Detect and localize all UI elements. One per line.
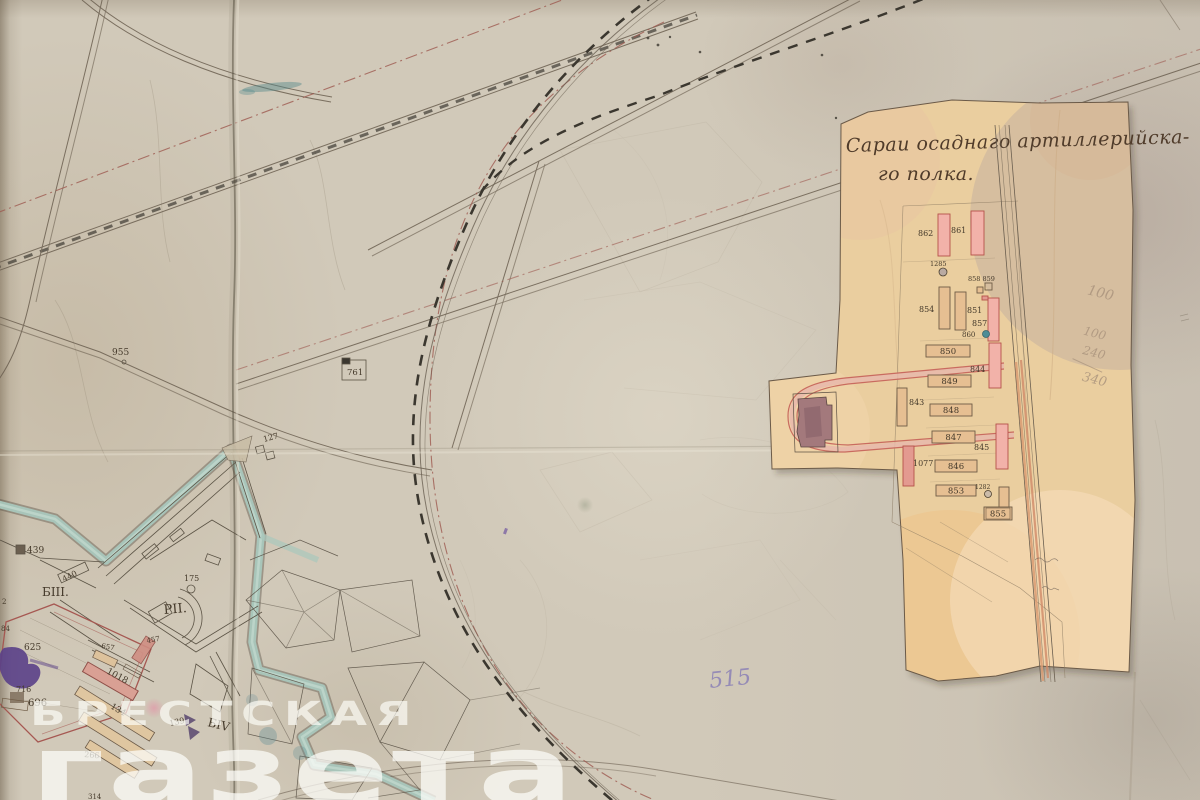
number-label: 846 xyxy=(948,462,964,472)
shed-building xyxy=(996,424,1008,469)
number-label: 440 xyxy=(61,569,79,584)
number-label: 848 xyxy=(943,406,959,416)
number-label: 845 xyxy=(974,443,989,452)
watermark: БРЕСТСКАЯ газета xyxy=(30,697,395,800)
number-label: РII. xyxy=(163,601,187,618)
shed-building xyxy=(982,296,988,300)
number-label: 457 xyxy=(146,635,161,645)
ink-blot xyxy=(0,647,40,689)
shed-building xyxy=(955,292,966,330)
number-label: 175 xyxy=(184,574,199,583)
number-label: 850 xyxy=(940,347,956,357)
number-label: 716 xyxy=(16,685,31,694)
number-label: 955 xyxy=(112,348,129,358)
map-marker xyxy=(939,268,947,276)
number-label: 854 xyxy=(919,305,934,314)
inset-title-line2: го полка. xyxy=(878,163,974,185)
purple-handwritten-number: 515 xyxy=(708,665,752,694)
red-survey-circle xyxy=(430,22,664,799)
number-label: 127 xyxy=(262,431,279,444)
railway-dashed-main xyxy=(413,0,656,800)
number-label: 625 xyxy=(24,643,41,653)
building-439-mark xyxy=(16,545,25,554)
scanned-map-page: 955761127439440БIII.175РII.6574576257166… xyxy=(0,0,1200,800)
number-label: 855 xyxy=(990,510,1006,520)
shed-building xyxy=(999,487,1009,509)
shed-building xyxy=(971,211,984,255)
number-label: 849 xyxy=(941,377,957,387)
number-label: 657 xyxy=(101,642,116,652)
road-steep-west xyxy=(0,0,109,386)
railway-track-line xyxy=(420,0,663,800)
number-label: 844 xyxy=(970,365,985,374)
number-label: 439 xyxy=(27,546,44,556)
number-label: 853 xyxy=(948,487,964,497)
number-label: 1077 xyxy=(913,459,933,468)
number-label: 857 xyxy=(972,319,987,328)
number-label: БIII. xyxy=(42,585,69,599)
inset-patch: Сараи осаднаго артиллерийска- го полка. xyxy=(730,60,1200,770)
number-label: 843 xyxy=(909,398,924,407)
building-657 xyxy=(93,650,118,667)
map-marker xyxy=(983,331,990,338)
road-junction-south xyxy=(452,161,545,450)
rampart-lines xyxy=(0,358,366,712)
number-label: 862 xyxy=(918,229,933,238)
number-label: 851 xyxy=(967,306,982,315)
shed-building xyxy=(939,287,950,329)
road-chaussee xyxy=(0,12,698,273)
shed-building xyxy=(938,214,950,256)
number-label: 847 xyxy=(945,433,961,443)
watermark-line2: газета xyxy=(30,724,577,800)
shed-building xyxy=(897,388,907,426)
number-label: 858 859 xyxy=(968,275,995,283)
map-artwork: 955761127439440БIII.175РII.6574576257166… xyxy=(0,0,1200,800)
map-marker xyxy=(985,491,992,498)
number-label: 861 xyxy=(951,226,966,235)
number-label: 860 xyxy=(962,331,975,339)
number-label: 1285 xyxy=(930,260,947,268)
marker-175 xyxy=(187,585,195,593)
number-label: 2 xyxy=(2,598,6,606)
shed-building xyxy=(977,287,983,293)
road-long-diagonal xyxy=(368,0,860,256)
railway-dots xyxy=(647,36,838,119)
number-label: 84 xyxy=(1,625,10,633)
number-label: 761 xyxy=(347,368,363,378)
shed-building xyxy=(989,343,1001,388)
number-label: 1282 xyxy=(975,484,990,491)
